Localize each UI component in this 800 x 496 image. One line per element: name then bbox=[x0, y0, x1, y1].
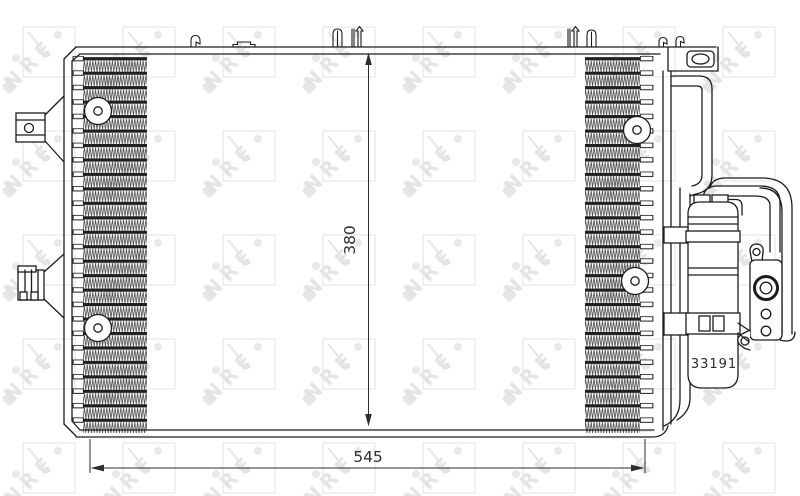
dimension-height-value: 380 bbox=[341, 225, 359, 255]
condenser-drawing-canvas: NRF bbox=[0, 0, 800, 496]
right-fin-column bbox=[585, 56, 654, 433]
port-small bbox=[761, 309, 771, 319]
grommet-lower-left bbox=[85, 315, 112, 342]
part-number-label: 33191 bbox=[691, 357, 737, 372]
prong-pin-icon bbox=[352, 27, 363, 48]
condenser-technical-drawing: NRF bbox=[0, 0, 800, 496]
dimension-width-value: 545 bbox=[353, 448, 383, 466]
grommet-upper-left bbox=[85, 98, 112, 125]
grommet-mid-right bbox=[622, 268, 649, 295]
prong-pin-icon bbox=[568, 27, 579, 48]
grommet-upper-right bbox=[624, 117, 651, 144]
port-small bbox=[761, 326, 771, 336]
